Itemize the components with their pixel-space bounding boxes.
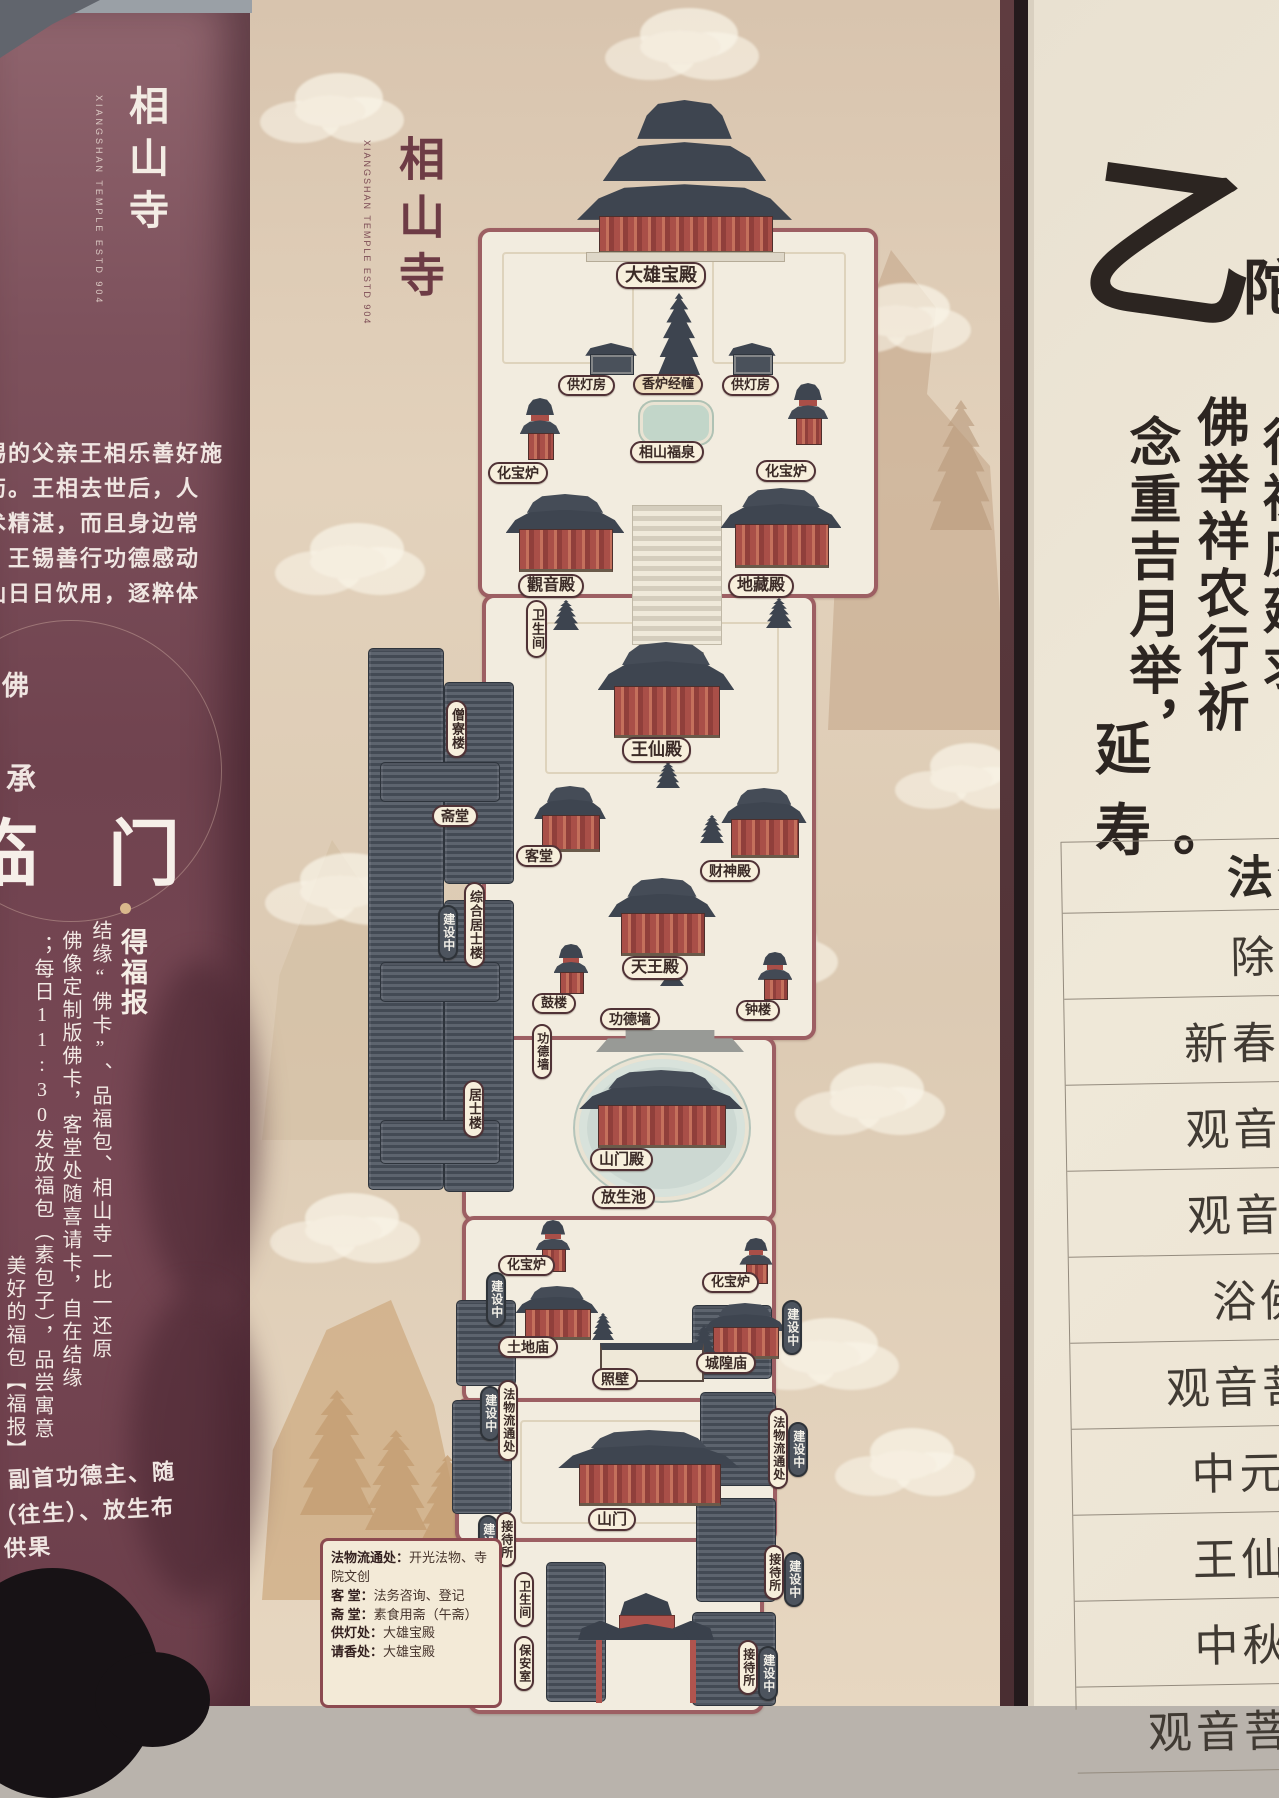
label-fawuliutongchu-right: 法物流通处 [768,1408,788,1489]
legend-value: 素食用斋（午斋） [374,1607,478,1622]
caishen-hall-illustration [726,788,802,858]
badge-jianshezhong: 建设中 [486,1272,506,1327]
lamp-house-illustration [731,343,773,375]
legend-value: 法务咨询、登记 [374,1588,465,1603]
label-xiangshanfuquan: 相山福泉 [630,441,704,463]
label-huabaolu-upper-left: 化宝炉 [488,462,548,484]
label-gongdeqiang-h: 功德墙 [600,1008,660,1030]
stairs [632,505,722,645]
connector-roof [380,762,500,802]
map-title: 相山寺 [385,135,451,395]
ceremony-schedule-table: 法会 除夕 新春祈福 观音开库 观音菩萨 浴佛节 观音菩萨成 中元法会 王仙庙会… [1060,834,1279,1709]
shanmen-hall-illustration [588,1070,734,1148]
badge-jianshezhong: 建设中 [758,1646,778,1701]
label-gulou: 鼓楼 [532,993,576,1014]
label-sengliaolou: 僧寮楼 [446,700,467,758]
label-gongdengfang-right: 供灯房 [722,375,779,396]
label-dizangdian: 地藏殿 [728,574,794,598]
cloud-icon [830,1085,906,1119]
label-jiedaisuo-right1: 接待所 [764,1545,784,1600]
promo-column-2: 佛像定制版佛卡，客堂处随喜请卡，自在结缘 [56,930,85,1530]
label-shanmendian: 山门殿 [590,1148,653,1171]
linmen-heading: 临 门 [0,795,206,900]
donor-line: 供果 [3,1529,53,1563]
history-paragraph-line: 药。王相去世后，人 [0,471,200,503]
label-tudimiao: 土地庙 [498,1336,558,1358]
legend-key: 请香处： [331,1644,383,1659]
schedule-row: 王仙庙会 [1073,1508,1279,1601]
label-weishengjian-upper: 卫生间 [526,600,547,658]
schedule-row: 中元法会 [1072,1422,1279,1515]
label-zhaobi: 照壁 [592,1368,638,1390]
legend-key: 客 堂： [331,1588,374,1603]
calligraphy-big-char: 乙 [1068,94,1277,369]
label-baoanshi: 保安室 [514,1636,534,1691]
schedule-row: 观音菩萨 [1067,1164,1279,1257]
label-tianwangdian: 天王殿 [622,956,688,980]
daxiong-hall-illustration [577,100,792,262]
archway-illustration [578,1593,714,1703]
label-caishendian: 财神殿 [700,860,760,882]
cut-character-fo: 佛 [2,664,31,703]
schedule-row: 除夕 [1063,906,1279,999]
panel-shadow [130,1290,260,1600]
label-huabaolu-lower-right: 化宝炉 [702,1272,759,1293]
label-guanyindian: 觀音殿 [518,574,584,598]
label-wangxiandian: 王仙殿 [622,737,691,763]
left-panel-title: 相山寺 [116,85,174,325]
cloud-icon [930,765,992,793]
badge-jianshezhong: 建设中 [784,1552,804,1607]
schedule-row: 新春祈福 [1064,992,1279,1085]
label-huabaolu-lower-left: 化宝炉 [498,1255,555,1276]
legend-key: 供灯处： [331,1625,383,1640]
badge-jianshezhong: 建设中 [438,905,458,960]
cloud-icon [295,95,365,127]
label-jiedaisuo-right2: 接待所 [738,1640,758,1695]
panel-shadow [140,960,260,1300]
cloud-icon [640,30,720,64]
promo-column-1: 结缘“佛卡”、品福包、相山寺一比一还原 [86,920,115,1520]
fuquan-spring-pond [640,402,712,444]
schedule-header: 法会 [1061,834,1279,913]
legend-row: 法物流通处：开光法物、寺院文创 [331,1549,491,1587]
left-panel-title-sub: XIANGSHAN TEMPLE ESTD 904 [94,95,104,325]
label-zonghejushilou: 综合居士楼 [464,882,485,968]
guanyin-hall-illustration [512,494,618,572]
label-zhonglou: 钟楼 [736,1000,780,1021]
calligraphy-column-left: 念重吉月举， [1112,415,1187,735]
monk-dorm-roofs [368,648,444,1190]
badge-jianshezhong: 建设中 [480,1386,500,1441]
legend-value: 大雄宝殿 [383,1625,435,1640]
legend-value: 大雄宝殿 [383,1644,435,1659]
tudi-temple-illustration [520,1286,594,1340]
cut-character-cheng: 承 [6,754,38,798]
history-paragraph-line: 锡的父亲王相乐善好施 [0,436,224,468]
label-gongdeqiang-v: 功德墙 [532,1024,552,1079]
cloud-icon [305,1215,381,1247]
calligraphy-partial-char: 陀 [1243,240,1279,327]
connector-roof [380,962,500,1002]
map-subtitle: XIANGSHAN TEMPLE ESTD 904 [362,140,372,380]
schedule-row: 中秋拜月 [1075,1594,1279,1687]
right-frame-strip [1000,0,1014,1706]
mountain-gate-illustration [568,1430,730,1506]
label-jushilou: 居士楼 [463,1080,484,1138]
badge-jianshezhong: 建设中 [788,1422,808,1477]
label-weishengjian-lower: 卫生间 [514,1572,534,1627]
wangxian-hall-illustration [605,642,727,738]
legend-row: 客 堂：法务咨询、登记 [331,1587,491,1606]
map-legend-box: 法物流通处：开光法物、寺院文创 客 堂：法务咨询、登记 斋 堂：素食用斋（午斋）… [320,1538,502,1708]
ketang-hall-illustration [538,786,602,852]
label-fawuliutongchu-left: 法物流通处 [498,1380,518,1461]
label-ketang: 客堂 [516,845,562,867]
burner-tower-illustration [786,383,830,445]
foreground-person-silhouette [95,1652,210,1747]
label-fangshengchi: 放生池 [592,1186,655,1209]
right-frame-strip-dark [1014,0,1028,1706]
label-huabaolu-upper-right: 化宝炉 [756,460,816,482]
burner-tower-illustration [518,398,562,460]
lamp-house-illustration [588,343,634,375]
legend-key: 斋 堂： [331,1607,374,1622]
dizang-hall-illustration [727,488,835,568]
cloud-icon [870,1450,936,1480]
label-gongdengfang-left: 供灯房 [558,375,615,396]
badge-jianshezhong: 建设中 [782,1300,802,1355]
history-paragraph-line: 仙日日饮用，逐粹体 [0,576,200,608]
cloud-icon [310,545,386,579]
schedule-row: 观音开库 [1066,1078,1279,1171]
label-shanmen: 山门 [588,1508,636,1531]
bell-tower-illustration [756,952,794,1000]
schedule-row: 观音菩萨出家 [1076,1680,1279,1773]
schedule-row: 浴佛节 [1069,1250,1279,1343]
legend-key: 法物流通处： [331,1550,409,1565]
history-paragraph-line: 。王锡善行功德感动 [0,541,200,573]
chenghuang-temple-illustration [708,1303,782,1359]
schedule-row: 观音菩萨成 [1070,1336,1279,1429]
gold-bullet-dot [120,903,131,914]
defubao-heading: 得福报 [113,928,152,1018]
legend-row: 斋 堂：素食用斋（午斋） [331,1606,491,1625]
label-daxiongbaodian: 大雄宝殿 [616,262,706,289]
label-zhaitang: 斋堂 [432,805,478,827]
drum-tower-illustration [552,944,590,994]
history-paragraph-line: 术精湛，而且身边常 [0,506,200,538]
legend-row: 供灯处：大雄宝殿 [331,1624,491,1643]
label-xianglujingchuang: 香炉经幢 [633,374,703,395]
label-chenghuangmiao: 城隍庙 [696,1352,756,1374]
tianwang-hall-illustration [614,878,710,956]
calligraphy-column-mid: 佛举祥农行祈 [1180,395,1255,725]
promo-column-3: ；每日11:30发放福包（素包子），品尝寓意 [28,935,57,1535]
legend-row: 请香处：大雄宝殿 [331,1643,491,1662]
